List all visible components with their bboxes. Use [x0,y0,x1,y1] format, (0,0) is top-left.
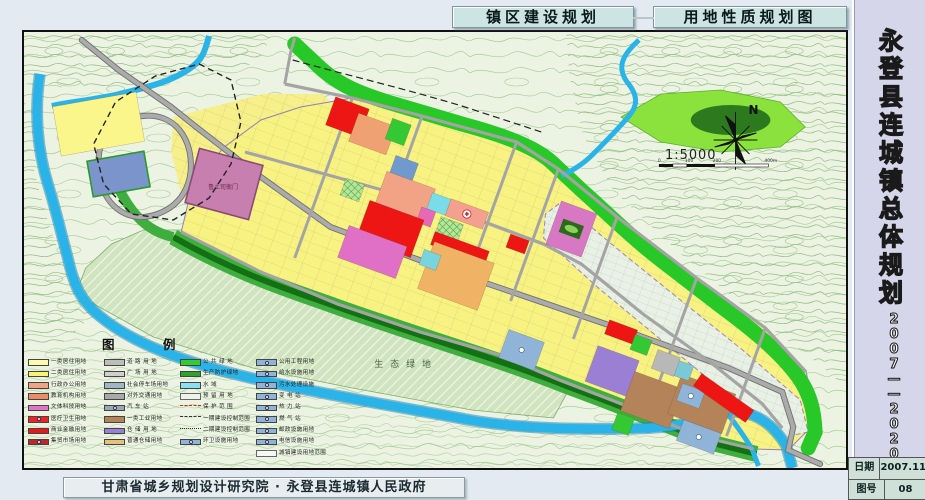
legend-label: 污水处理设施 [279,383,314,389]
heritage-label: 鲁土司衙门 [208,183,238,191]
legend-swatch [28,405,49,412]
legend-label: 一期建设控制范围 [203,417,250,423]
legend-swatch [28,428,49,435]
legend-item: 汽 车 站 [104,405,180,412]
legend-swatch [256,359,277,366]
legend-label: 公用工程用地 [279,360,314,366]
date-label: 日期 [849,458,880,479]
legend-item: 邮政设施用地 [256,427,322,434]
legend-column-3: 公用工程用地给水设施用地污水处理设施变 电 站热 力 站燃 气 站邮政设施用地电… [256,359,322,462]
scale-tick: 200 [713,158,722,164]
legend-label: 教育机构用地 [51,394,86,400]
legend-swatch [104,439,125,446]
legend-item: 一类居住用地 [28,359,104,366]
legend-item: 城镇建设用地范围 [256,450,322,457]
legend-item: 公 共 绿 地 [180,359,256,366]
legend-label: 对外交通用地 [127,394,162,400]
scale-tick: 400m [764,158,777,164]
legend-swatch [104,416,125,423]
legend-column-2: 公 共 绿 地生产防护绿地水 域预 留 用 地保 护 范 围一期建设控制范围二期… [180,359,256,462]
legend-label: 邮政设施用地 [279,428,314,434]
sidebar-period: 2007——2020 [878,312,902,462]
legend-title: 图 例 [102,334,322,353]
legend-swatch [180,416,201,423]
planning-map-sheet: { "titles": { "construction": "镇区建设规划", … [0,0,925,500]
legend-swatch [256,382,277,389]
legend-label: 热 力 站 [279,405,301,411]
legend-label: 一类工业用地 [127,417,162,423]
legend-label: 变 电 站 [279,394,301,400]
legend-swatch [180,393,201,400]
legend-item: 商业金融用地 [28,427,104,434]
legend-item: 环卫设施用地 [180,439,256,446]
legend-label: 社会停车场用地 [127,383,168,389]
legend-item: 对外交通用地 [104,393,180,400]
title-connector [633,17,654,19]
legend-columns: 一类居住用地二类居住用地行政办公用地教育机构用地文体科技用地医疗卫生用地商业金融… [28,359,322,462]
legend-item: 电信设施用地 [256,439,322,446]
hospital-icon [463,210,471,218]
legend-label: 电信设施用地 [279,439,314,445]
legend-label: 文体科技用地 [51,405,86,411]
legend-swatch [180,428,201,435]
legend-label: 普通仓储用地 [127,439,162,445]
date-row: 日期 2007.11 [849,458,925,479]
legend-item: 保 护 范 围 [180,405,256,412]
legend-item: 预 留 用 地 [180,393,256,400]
legend-label: 医疗卫生用地 [51,417,86,423]
sidebar: 永登县连城镇总体规划 2007——2020 日期 2007.11 图号 08 [852,0,925,500]
legend-label: 道 路 用 地 [127,360,157,366]
sidebar-project-title: 永登县连城镇总体规划 [873,28,907,308]
legend-item: 集贸市场用地 [28,439,104,446]
legend-swatch [180,371,201,378]
legend-item: 公用工程用地 [256,359,322,366]
legend-swatch [104,405,125,412]
legend-swatch [104,428,125,435]
sheet-row: 图号 08 [849,479,925,500]
title-box-construction: 镇区建设规划 [452,6,634,28]
legend-label: 仓 储 用 地 [127,428,157,434]
legend-item: 给水设施用地 [256,370,322,377]
legend-label: 燃 气 站 [279,417,301,423]
legend-label: 二类居住用地 [51,371,86,377]
legend-label: 广 场 用 地 [127,371,157,377]
legend-item: 医疗卫生用地 [28,416,104,423]
legend-label: 城镇建设用地范围 [279,451,326,457]
legend-swatch [256,439,277,446]
legend-column-1: 道 路 用 地广 场 用 地社会停车场用地对外交通用地汽 车 站一类工业用地仓 … [104,359,180,462]
legend-swatch [180,439,201,446]
legend-swatch [28,393,49,400]
legend-item: 燃 气 站 [256,416,322,423]
legend-label: 给水设施用地 [279,371,314,377]
legend-item: 二类居住用地 [28,370,104,377]
legend-label: 二期建设控制范围 [203,428,250,434]
legend-item: 教育机构用地 [28,393,104,400]
legend-swatch [28,371,49,378]
scale-tick: 0 [658,158,661,164]
north-label: N [748,103,758,117]
legend-swatch [104,359,125,366]
legend-swatch [180,405,201,412]
legend-item: 广 场 用 地 [104,370,180,377]
legend-item: 文体科技用地 [28,405,104,412]
legend-item: 行政办公用地 [28,382,104,389]
legend-item: 普通仓储用地 [104,439,180,446]
legend-swatch [104,382,125,389]
legend-swatch [256,393,277,400]
legend-swatch [256,450,277,457]
legend-swatch [180,359,201,366]
legend-swatch [28,416,49,423]
legend-item: 热 力 站 [256,405,322,412]
date-value: 2007.11 [880,458,925,479]
legend-item: 一类工业用地 [104,416,180,423]
legend-swatch [28,359,49,366]
eco-green-label: 生态绿地 [374,358,438,370]
legend-label: 集贸市场用地 [51,439,86,445]
legend-label: 公 共 绿 地 [203,360,233,366]
title-box-landuse: 用地性质规划图 [653,6,847,28]
legend-label: 生产防护绿地 [203,371,238,377]
legend-label: 保 护 范 围 [203,405,233,411]
sheet-value: 08 [885,480,925,500]
legend-swatch [28,382,49,389]
legend-label: 预 留 用 地 [203,394,233,400]
legend-label: 水 域 [203,383,217,389]
legend-swatch [256,371,277,378]
legend-swatch [104,393,125,400]
legend-item: 生产防护绿地 [180,370,256,377]
sheet-label: 图号 [849,480,885,500]
legend-swatch [256,416,277,423]
legend-swatch [256,428,277,435]
legend-item: 社会停车场用地 [104,382,180,389]
legend-label: 一类居住用地 [51,360,86,366]
scale-tick: 100 [685,158,694,164]
legend-swatch [28,439,49,446]
legend: 图 例 一类居住用地二类居住用地行政办公用地教育机构用地文体科技用地医疗卫生用地… [28,334,322,462]
legend-label: 行政办公用地 [51,383,86,389]
legend-item: 二期建设控制范围 [180,427,256,434]
legend-label: 商业金融用地 [51,428,86,434]
legend-label: 环卫设施用地 [203,439,238,445]
legend-item: 仓 储 用 地 [104,427,180,434]
legend-item: 污水处理设施 [256,382,322,389]
credit-bar: 甘肃省城乡规划设计研究院 · 永登县连城镇人民政府 [63,477,465,498]
legend-column-0: 一类居住用地二类居住用地行政办公用地教育机构用地文体科技用地医疗卫生用地商业金融… [28,359,104,462]
legend-swatch [256,405,277,412]
legend-swatch [180,382,201,389]
sidebar-table: 日期 2007.11 图号 08 [848,457,925,500]
legend-item: 一期建设控制范围 [180,416,256,423]
legend-item: 变 电 站 [256,393,322,400]
legend-item: 水 域 [180,382,256,389]
legend-label: 汽 车 站 [127,405,149,411]
legend-swatch [104,371,125,378]
legend-item: 道 路 用 地 [104,359,180,366]
